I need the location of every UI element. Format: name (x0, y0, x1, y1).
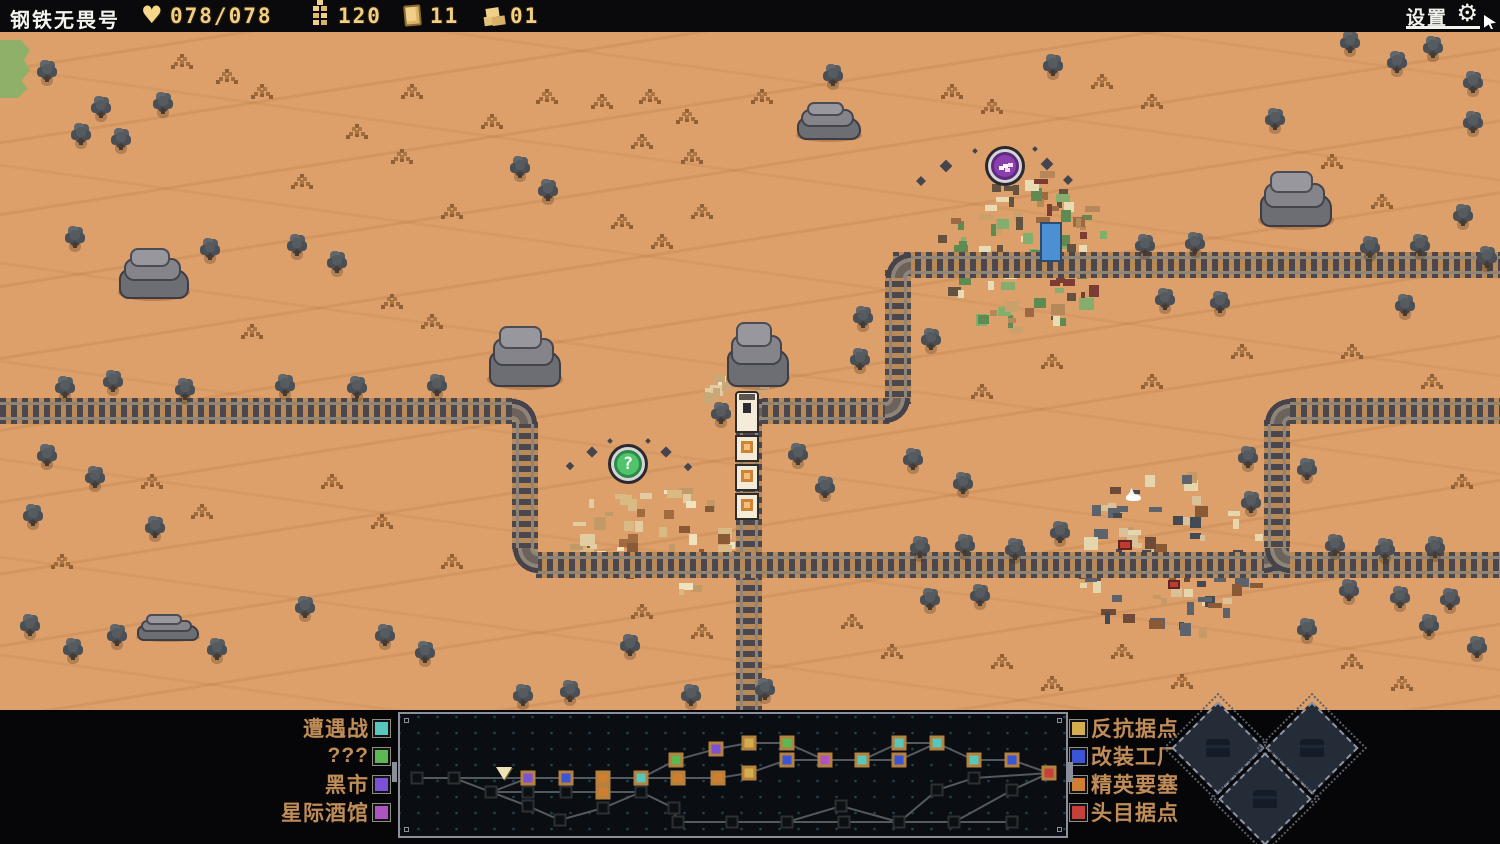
settlement-block (959, 241, 967, 246)
settlement-block (1190, 517, 1202, 527)
settlement-block (713, 388, 720, 397)
route-node-boss (1042, 766, 1057, 781)
sparkle-icon (940, 160, 953, 173)
bush (1246, 495, 1256, 505)
route-node-empty (835, 800, 848, 813)
grass-patch (0, 40, 30, 98)
grass-tuft (380, 520, 384, 524)
bush (1302, 622, 1312, 632)
bush (915, 540, 925, 550)
grass-tuft (430, 320, 434, 324)
legend-label: 遭遇战 (303, 713, 369, 743)
settlement-block (997, 219, 1009, 229)
route-node-empty (838, 816, 851, 829)
gear-icon: ⚙ (1456, 0, 1478, 27)
route-node-encounter (634, 771, 649, 786)
legend-label: 精英要塞 (1091, 769, 1179, 799)
settings-label: 设置 (1406, 8, 1448, 29)
settlement-block (1047, 204, 1053, 216)
railway-track (1264, 420, 1290, 554)
chest-icon (1206, 739, 1230, 757)
bush (300, 600, 310, 610)
settlement-block (1145, 537, 1155, 549)
railway-corner (1264, 548, 1290, 574)
settlement-block (1084, 537, 1099, 550)
grass-tuft (1050, 360, 1054, 364)
legend-color-square (1072, 778, 1085, 791)
bush (793, 447, 803, 457)
legend-color-square (375, 750, 388, 763)
settlement-block (1051, 304, 1065, 315)
settlement-block (938, 235, 947, 243)
car-roof-hatch (741, 499, 753, 511)
red-window (1118, 540, 1132, 550)
grass-tuft (685, 115, 689, 119)
skull-icon (1003, 164, 1008, 168)
route-node-empty (448, 772, 461, 785)
grass-tuft (330, 480, 334, 484)
sparkle-icon (684, 463, 692, 471)
grass-tuft (1400, 682, 1404, 686)
grass-tuft (700, 630, 704, 634)
train-car (735, 464, 759, 491)
settlement-block (1053, 316, 1060, 326)
settlement-block (990, 310, 997, 316)
settlement-block (589, 499, 594, 508)
grass-tuft (600, 100, 604, 104)
settlement-block (1034, 298, 1046, 309)
bush (292, 238, 302, 248)
grass-tuft (545, 95, 549, 99)
legend-color-square (1072, 722, 1085, 735)
settlement-block (1112, 595, 1122, 602)
rock-slab (736, 322, 772, 347)
rock-slab (130, 248, 170, 268)
bush (1345, 35, 1355, 45)
grass-tuft (260, 90, 264, 94)
legend-label: 反抗据点 (1091, 713, 1179, 743)
settlement-block (958, 290, 964, 297)
railway-track (885, 270, 911, 404)
grass-tuft (250, 330, 254, 334)
bush (420, 645, 430, 655)
route-node-encounter (855, 753, 870, 768)
bush (332, 255, 342, 265)
unknown-marker[interactable]: ? (608, 444, 648, 484)
locomotive-cap (739, 394, 755, 400)
frame-corner (404, 718, 409, 723)
route-node-unknown (669, 753, 684, 768)
route-node-market (521, 771, 536, 786)
grass-tuft (1430, 380, 1434, 384)
settlement-block (1250, 583, 1263, 588)
settlement-block (1192, 496, 1201, 504)
route-node-empty (635, 786, 648, 799)
resource-value: 120 (338, 4, 382, 28)
settlement-block (1197, 581, 1206, 586)
bush (1344, 583, 1354, 593)
bush (280, 378, 290, 388)
legend-item: 精英要塞 (1072, 772, 1179, 796)
sparkle-icon (645, 438, 651, 444)
legend-label: ??? (328, 744, 369, 768)
bush (975, 588, 985, 598)
grass-tuft (640, 610, 644, 614)
grass-tuft (1120, 650, 1124, 654)
railway-track (893, 252, 1500, 278)
settlement-block (1093, 581, 1101, 593)
bush (855, 352, 865, 362)
rock (796, 98, 862, 142)
sparkle-icon (916, 176, 926, 186)
sparkle-icon (1041, 158, 1054, 171)
bush (42, 64, 52, 74)
legend-color-square (1072, 806, 1085, 819)
game-title: 钢铁无畏号 (10, 4, 120, 33)
legend-item: 遭遇战 (303, 716, 388, 740)
frame-corner (1057, 718, 1062, 723)
player-position-marker (496, 767, 512, 780)
chest-icon (1253, 790, 1277, 808)
settlement-block (1004, 186, 1013, 191)
legend-color-square (1072, 750, 1085, 763)
bush (158, 96, 168, 106)
settlement-block (1092, 505, 1101, 516)
route-node-tavern (818, 753, 833, 768)
settlement-block (679, 526, 690, 533)
bush (543, 183, 553, 193)
settlement-block (1123, 614, 1135, 623)
grass-tuft (450, 210, 454, 214)
red-window (1168, 580, 1180, 589)
car-roof-hatch (741, 441, 753, 453)
bush (565, 684, 575, 694)
settlement-block (686, 501, 695, 508)
rock (1258, 166, 1334, 230)
frame-corner (1057, 827, 1062, 832)
grass-tuft (180, 60, 184, 64)
bush (1468, 115, 1478, 125)
settlement-block (573, 522, 586, 526)
settlement-block (689, 534, 697, 545)
bush (205, 242, 215, 252)
settlement-block (640, 493, 652, 500)
rock-slab (146, 614, 182, 624)
settlement-block (635, 521, 643, 532)
grass-tuft (700, 210, 704, 214)
bush (858, 310, 868, 320)
bush (1445, 592, 1455, 602)
route-node-market (709, 742, 724, 757)
train-locomotive (735, 391, 759, 433)
settlement-block (1040, 171, 1055, 178)
locomotive-window (743, 403, 751, 413)
grass-tuft (690, 155, 694, 159)
bird-icon (1126, 494, 1141, 501)
bush (70, 230, 80, 240)
bush (28, 508, 38, 518)
settlement-block (959, 278, 971, 285)
settlement-block (1223, 598, 1232, 604)
bush (1395, 590, 1405, 600)
grass-tuft (1150, 100, 1154, 104)
settlement-block (1154, 544, 1167, 552)
route-node-factory (780, 753, 795, 768)
bush (926, 332, 936, 342)
route-node-empty (672, 816, 685, 829)
railway-corner (512, 398, 538, 424)
settlement-block (1223, 608, 1230, 618)
settlement-block (620, 495, 632, 505)
bush (1472, 640, 1482, 650)
bush (352, 380, 362, 390)
settlement-block (1034, 179, 1048, 184)
grass-tuft (640, 140, 644, 144)
route-node-unknown (780, 736, 795, 751)
bush (1010, 542, 1020, 552)
bush (1400, 298, 1410, 308)
railway-track (0, 398, 516, 424)
route-node-encounter (930, 736, 945, 751)
grass-tuft (390, 300, 394, 304)
bush (1458, 208, 1468, 218)
train-car (735, 435, 759, 462)
bush (1468, 75, 1478, 85)
bush (96, 100, 106, 110)
route-edge (787, 821, 844, 823)
route-edge (732, 821, 787, 823)
legend-item: 星际酒馆 (281, 800, 388, 824)
settlement-block (659, 527, 667, 537)
legend-color-square (375, 806, 388, 819)
bush (1270, 112, 1280, 122)
settlement-block (951, 218, 960, 224)
legend-item: 改装工厂 (1072, 744, 1179, 768)
settlement-block (1200, 535, 1206, 541)
bush (828, 68, 838, 78)
route-node-elite (596, 785, 611, 800)
settlement-block (1061, 210, 1072, 222)
settlement-block (1195, 506, 1208, 517)
frame-notch (392, 762, 397, 782)
route-node-elite (671, 771, 686, 786)
settlement-block (979, 214, 993, 220)
black-market-marker[interactable] (985, 146, 1025, 186)
route-edge (954, 821, 1012, 823)
frame-corner (404, 827, 409, 832)
route-node-empty (411, 772, 424, 785)
grass-tuft (1100, 80, 1104, 84)
bush (1482, 250, 1492, 260)
settlement-block (637, 509, 645, 517)
legend-item: 头目据点 (1072, 800, 1179, 824)
settlement-block (1233, 519, 1239, 529)
settlement-block (1187, 609, 1194, 616)
legend-item: 黑市 (325, 772, 388, 796)
rock-slab (499, 326, 542, 350)
bush (1055, 525, 1065, 535)
bush (90, 470, 100, 480)
legend-label: 黑市 (325, 769, 369, 799)
sparkle-icon (1032, 146, 1038, 152)
bush (380, 628, 390, 638)
settlement-block (1055, 288, 1064, 293)
grass-tuft (410, 90, 414, 94)
grass-tuft (1000, 660, 1004, 664)
grass-tuft (1150, 380, 1154, 384)
settlement-block (1208, 603, 1221, 608)
sparkle-icon (972, 148, 978, 154)
top-bar: 钢铁无畏号 ♥ 078/078 1201101 设置 ⚙ (0, 0, 1500, 32)
settlement-block (1182, 475, 1192, 485)
grass-tuft (660, 240, 664, 244)
legend-label: 星际酒馆 (281, 797, 369, 827)
grass-tuft (60, 560, 64, 564)
bush (960, 538, 970, 548)
settlement-block (1013, 185, 1019, 195)
bush (515, 160, 525, 170)
settlement-block (1079, 298, 1094, 311)
railway-corner (512, 548, 538, 574)
bush (518, 688, 528, 698)
grass-tuft (760, 95, 764, 99)
route-node-factory (559, 771, 574, 786)
settlement-block (1145, 475, 1155, 487)
settings-button[interactable]: 设置 ⚙ (1406, 3, 1480, 29)
bush (1160, 292, 1170, 302)
settlement-block (1184, 589, 1192, 598)
settlement-block (988, 281, 994, 290)
route-node-resistance (742, 736, 757, 751)
route-edge (678, 821, 732, 823)
settlement-block (596, 517, 605, 528)
bush (25, 618, 35, 628)
settlement-block (1128, 530, 1141, 534)
legend-item: ??? (328, 744, 388, 768)
settlement-block (1198, 597, 1211, 602)
grass-tuft (1180, 680, 1184, 684)
route-node-resistance (742, 766, 757, 781)
settlement-block (1153, 595, 1161, 600)
settlement-block (1067, 293, 1076, 301)
route-node-elite (711, 771, 726, 786)
bush (1415, 238, 1425, 248)
water-tank (1040, 222, 1062, 262)
settlement-block (1023, 233, 1033, 244)
route-node-empty (668, 802, 681, 815)
bush (1215, 295, 1225, 305)
settlement-block (667, 490, 682, 498)
resource-value: 11 (430, 4, 459, 28)
legend-color-square (375, 778, 388, 791)
bush (1392, 55, 1402, 65)
bush (925, 592, 935, 602)
route-node-empty (931, 784, 944, 797)
bush (42, 448, 52, 458)
settlement-block (1080, 583, 1086, 587)
route-node-empty (560, 786, 573, 799)
bush (1365, 240, 1375, 250)
route-node-elite (596, 771, 611, 786)
sparkle-icon (586, 446, 597, 457)
settlement-block (1089, 285, 1099, 297)
grass-tuft (1460, 480, 1464, 484)
bush (180, 382, 190, 392)
grass-tuft (1240, 350, 1244, 354)
grass-tuft (150, 480, 154, 484)
bush (1302, 462, 1312, 472)
rock-slab (1270, 171, 1313, 193)
settlement-block (1149, 620, 1164, 629)
grass-tuft (200, 510, 204, 514)
settlement-block (627, 543, 638, 552)
legend-right: 反抗据点改装工厂精英要塞头目据点 (1072, 716, 1179, 824)
settlement-block (605, 512, 614, 517)
legend-item: 反抗据点 (1072, 716, 1179, 740)
route-edge (844, 821, 899, 823)
bush (1048, 58, 1058, 68)
frame-notch (1068, 762, 1073, 782)
resource-value: 01 (510, 4, 539, 28)
settlement-block (1008, 318, 1015, 323)
settlement-block (1255, 534, 1263, 541)
grass-tuft (490, 120, 494, 124)
route-edge (954, 789, 1013, 823)
railway-track (512, 422, 538, 552)
bush (1190, 236, 1200, 246)
settlement-block (1076, 218, 1082, 228)
route-node-empty (726, 816, 739, 829)
bush (212, 642, 222, 652)
bush (686, 688, 696, 698)
settlement-block (1171, 588, 1182, 597)
heart-icon: ♥ (141, 1, 163, 29)
railway-corner (885, 252, 911, 278)
marker-face: ? (614, 450, 642, 478)
settlement-block (1149, 507, 1162, 512)
world-map: ? (0, 32, 1500, 710)
route-node-encounter (967, 753, 982, 768)
bush (625, 638, 635, 648)
route-node-empty (968, 772, 981, 785)
legend-label: 改装工厂 (1091, 741, 1179, 771)
route-node-factory (892, 753, 907, 768)
bush (1330, 538, 1340, 548)
grass-tuft (355, 130, 359, 134)
bush (908, 452, 918, 462)
settlement-block (985, 205, 997, 211)
route-edge (899, 821, 954, 823)
bush (150, 520, 160, 530)
settlement-block (1228, 511, 1240, 517)
grass-tuft (1050, 682, 1054, 686)
ammo-icon (313, 6, 319, 11)
bush (60, 380, 70, 390)
legend-color-square (375, 722, 388, 735)
train-car (735, 493, 759, 520)
bottom-panel: 遭遇战???黑市星际酒馆 反抗据点改装工厂精英要塞头目据点 (0, 710, 1500, 844)
settlement-block (1100, 231, 1107, 239)
settlement-block (1059, 318, 1066, 326)
bush (108, 374, 118, 384)
settlement-block (1063, 279, 1075, 286)
grass-tuft (950, 90, 954, 94)
settlement-block (714, 375, 725, 382)
route-node-empty (522, 800, 535, 813)
bush (1424, 618, 1434, 628)
route-node-empty (893, 816, 906, 829)
rock (118, 243, 190, 301)
